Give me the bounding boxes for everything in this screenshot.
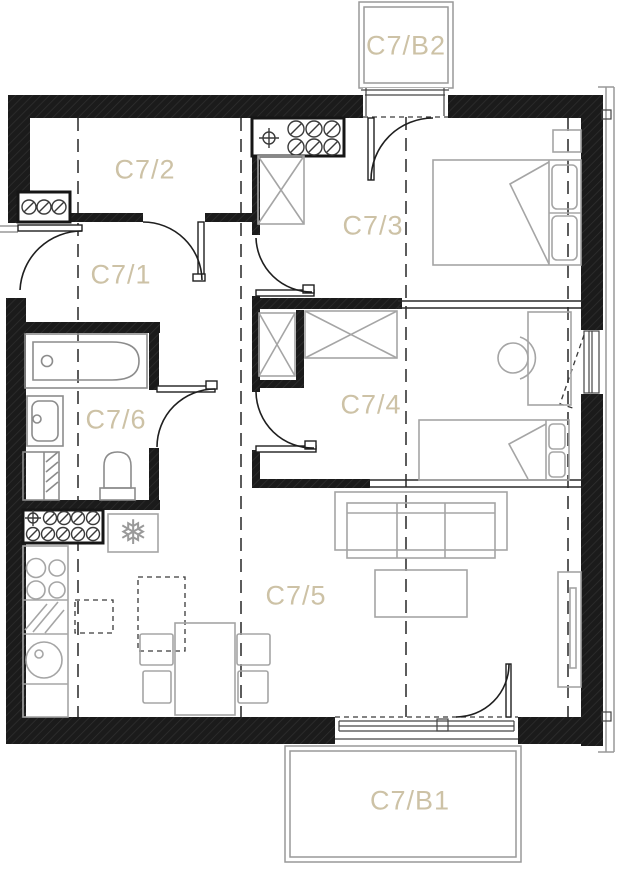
dining-chair — [238, 671, 268, 703]
shaft-c7-3 — [252, 118, 344, 156]
room-label-c7-3: C7/3 — [342, 211, 403, 242]
washing-machine — [23, 452, 59, 500]
entrance-door — [18, 225, 82, 290]
entrance-threshold — [0, 226, 18, 232]
nightstand — [553, 130, 581, 152]
refrigerator: ❅ — [108, 513, 158, 553]
door-c7-3 — [256, 238, 314, 296]
washbasin — [27, 396, 63, 446]
shaft-entry — [18, 192, 70, 222]
desk-chair — [498, 337, 535, 379]
dining-chair — [140, 634, 173, 665]
room-label-c7-b2: C7/B2 — [366, 31, 446, 62]
dining-chair — [143, 671, 171, 703]
kitchen-sink — [26, 642, 62, 678]
snowflake-icon: ❅ — [119, 513, 148, 553]
closet-c7-4 — [259, 313, 295, 376]
dining-chair — [237, 634, 270, 665]
room-label-c7-b1: C7/B1 — [370, 786, 450, 817]
planned-appliance-2 — [138, 577, 185, 651]
room-label-c7-5: C7/5 — [265, 581, 326, 612]
bed-c7-3 — [433, 160, 581, 265]
sofa — [335, 492, 507, 558]
door-bathroom — [157, 381, 217, 447]
wardrobe-c7-4 — [305, 311, 397, 358]
interior-walls — [22, 118, 402, 510]
door-c7-2 — [143, 222, 205, 281]
planned-appliance-1 — [75, 600, 113, 633]
balcony-b2-doorway — [361, 88, 449, 117]
dining-table — [175, 623, 235, 715]
room-label-c7-6: C7/6 — [85, 405, 146, 436]
floorplan-canvas: ❅ — [0, 0, 622, 870]
bathtub — [25, 334, 147, 388]
balcony-b1-doorway — [335, 717, 518, 744]
room-label-c7-1: C7/1 — [90, 260, 151, 291]
door-balcony-b2 — [368, 118, 433, 180]
toilet — [100, 452, 135, 500]
desk — [528, 312, 571, 405]
cooktop — [27, 559, 66, 600]
room-label-c7-4: C7/4 — [340, 390, 401, 421]
closet-c7-3 — [258, 156, 304, 224]
shaft-kitchen — [23, 510, 103, 543]
coffee-table — [375, 570, 467, 617]
room-label-c7-2: C7/2 — [114, 155, 175, 186]
door-c7-4 — [256, 392, 316, 452]
tv-stand — [558, 572, 581, 687]
bed-c7-4 — [419, 420, 569, 480]
oven — [25, 602, 64, 633]
door-balcony-b1 — [456, 664, 511, 717]
